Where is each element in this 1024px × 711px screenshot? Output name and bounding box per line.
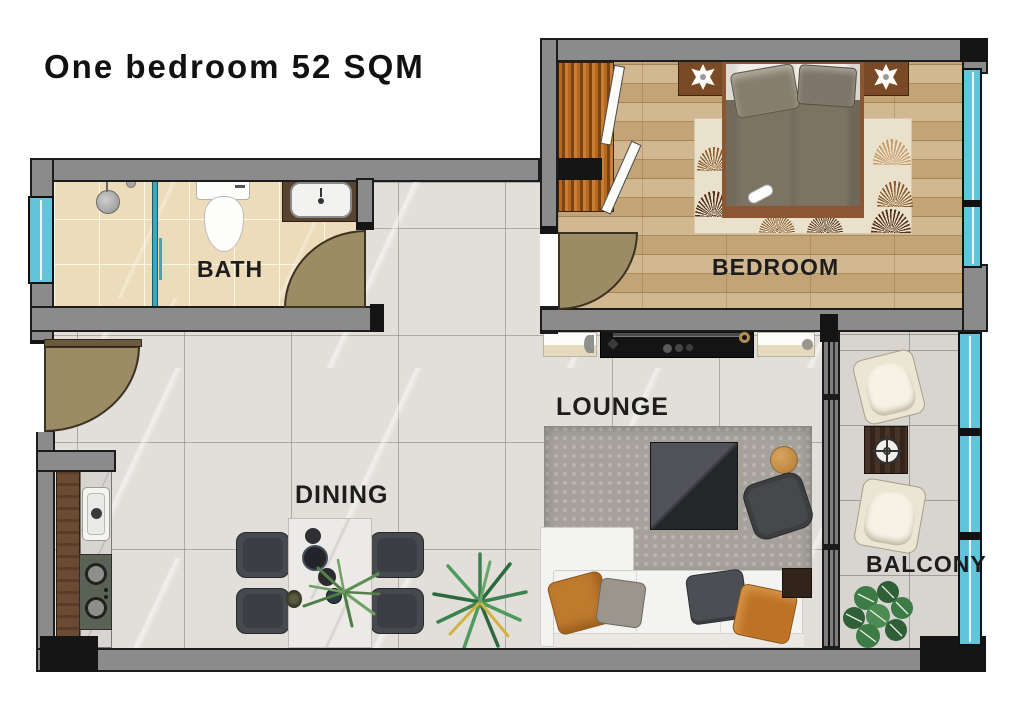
bedroom-door-threshold [540,232,558,308]
tv-screen [613,333,741,337]
sink-drain [91,508,102,519]
cabinet-shell-decor [802,339,813,350]
floor-plan: One bedroom 52 SQM [0,0,1024,711]
bath-label: BATH [197,256,263,283]
palm-plant [430,546,530,658]
sliding-door-handle-2 [824,544,838,550]
bed-pillow-small [797,64,858,108]
window-glass-line [40,200,42,280]
balcony-armchair-2 [853,477,928,555]
wall-kitchen-stub [36,450,116,472]
sliding-door-track-1 [828,334,830,646]
sofa-side-table [782,568,812,598]
wall-bedroom-bottom [540,308,988,332]
cap-bedroom-wall [540,226,558,234]
entry-threshold [26,344,46,432]
target-cross-h [872,450,902,452]
tv-side-cabinet-right [757,332,815,357]
kitchen-cabinet-strip [56,470,80,640]
coffee-table [650,442,738,530]
console-decor-diamond [607,338,618,349]
cap-bath-wall [370,304,384,332]
kitchen-sink [82,487,110,541]
lounge-label: LOUNGE [556,393,669,422]
hob-knob-1 [104,588,108,592]
dining-chair-2 [236,588,290,634]
rug-fan-motif [877,181,913,207]
wall-bottom [36,648,986,672]
plan-title: One bedroom 52 SQM [44,48,425,86]
column-bottom-left [40,636,98,672]
column-top-right [960,38,988,62]
monstera-plant [836,576,920,656]
sofa-pillow-grey [595,577,647,629]
sliding-door-handle-1 [824,394,838,400]
dining-label: DINING [295,481,389,510]
console-gold-ring [739,332,750,343]
railing-post-2 [960,532,980,540]
washbasin [290,182,352,218]
bedroom-window [962,68,982,268]
railing-post-1 [960,428,980,436]
wall-bedroom-right-bottom [962,264,988,332]
hob-burner-2 [85,597,107,619]
bedroom-label: BEDROOM [712,254,839,281]
balcony-glass-railing [958,332,982,646]
star-center [883,74,889,80]
wall-bedroom-left [540,38,558,234]
hob-burner-1 [85,563,107,585]
kitchen-hob [79,554,112,630]
bedroom-niche-column [558,158,602,180]
round-side-table [770,446,798,474]
console-decor-dot [675,344,683,352]
wall-top [30,158,540,182]
wall-bath-bottom [30,306,382,332]
table-target-decor [874,438,900,464]
cap-bath-stub [356,222,374,230]
wall-bath-right-stub [356,178,374,228]
entry-door-leaf [44,339,142,347]
console-decor-dot [663,344,672,353]
star-center [700,74,706,80]
shower-glass-handle [159,238,162,280]
aloe-plant [296,548,380,634]
balcony-label: BALCONY [866,551,987,578]
window-glass-line [972,72,974,264]
table-decor-bowl-small [305,528,321,544]
shower-head [96,190,120,214]
tv-side-cabinet-left [543,332,597,357]
balcony-sliding-door [822,332,840,648]
hob-knob-2 [104,595,108,599]
railing-glass-line [969,336,971,642]
shower-glass-panel [152,180,158,308]
window-transom [964,200,980,207]
wall-bedroom-top [540,38,988,62]
rug-fan-motif [871,209,911,233]
toilet-flush-button [235,185,245,188]
tv-console [600,330,754,358]
bath-window [28,196,54,284]
column-lounge-balcony [820,314,838,342]
rug-fan-motif [873,139,911,165]
sliding-door-track-2 [833,334,835,646]
cabinet-decor [584,335,594,353]
console-decor-dot [686,344,693,351]
basin-drain [318,198,324,204]
balcony-table [864,426,908,474]
basin-faucet [320,188,322,197]
dining-chair-1 [236,532,290,578]
